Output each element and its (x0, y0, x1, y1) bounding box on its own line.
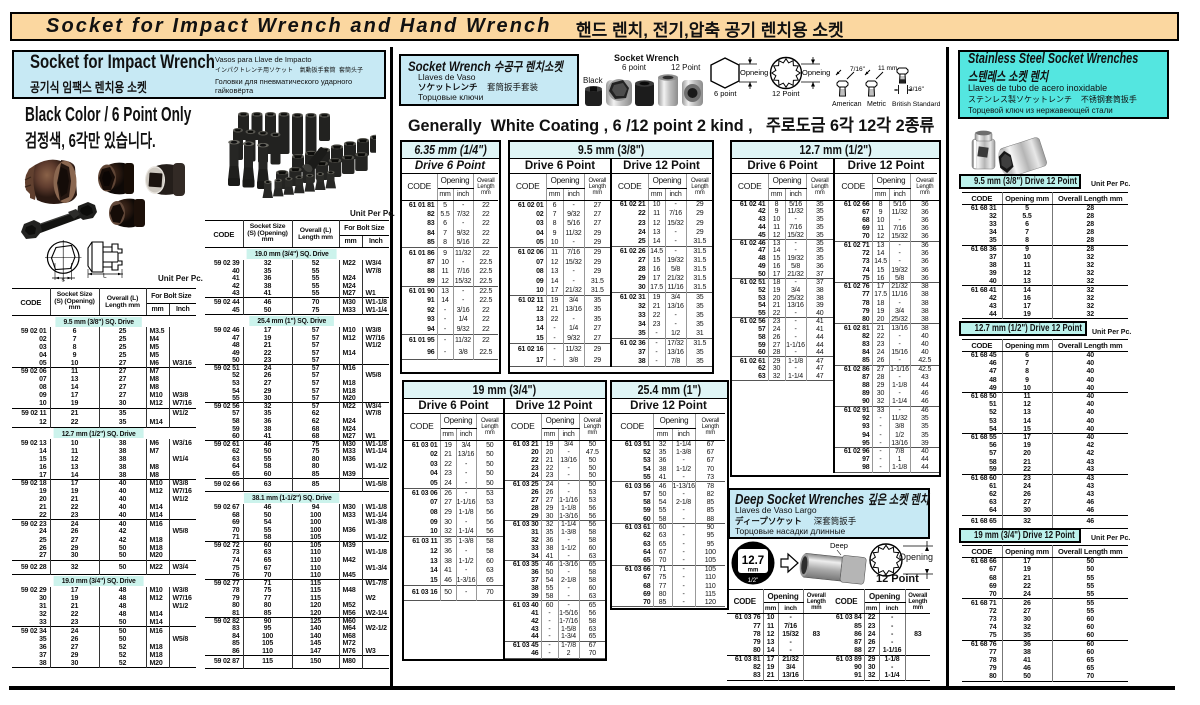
svg-text:12.7: 12.7 (742, 555, 764, 567)
svg-text:mm: mm (748, 568, 759, 574)
svg-text:British Standard: British Standard (892, 101, 941, 108)
svg-text:L: L (103, 273, 107, 280)
svg-text:Deep: Deep (830, 541, 848, 550)
svg-text:6 point: 6 point (714, 89, 737, 98)
svg-text:11 mm: 11 mm (878, 65, 897, 72)
svg-text:1/2": 1/2" (748, 578, 758, 584)
svg-text:12 Point: 12 Point (772, 89, 800, 98)
svg-text:Opneing: Opneing (802, 68, 830, 77)
svg-text:3/16": 3/16" (909, 86, 925, 93)
svg-text:American: American (832, 101, 862, 108)
svg-text:s: s (62, 277, 66, 284)
svg-text:Metric: Metric (867, 101, 887, 108)
svg-text:7/16": 7/16" (850, 66, 866, 73)
svg-text:Opneing: Opneing (740, 68, 768, 77)
